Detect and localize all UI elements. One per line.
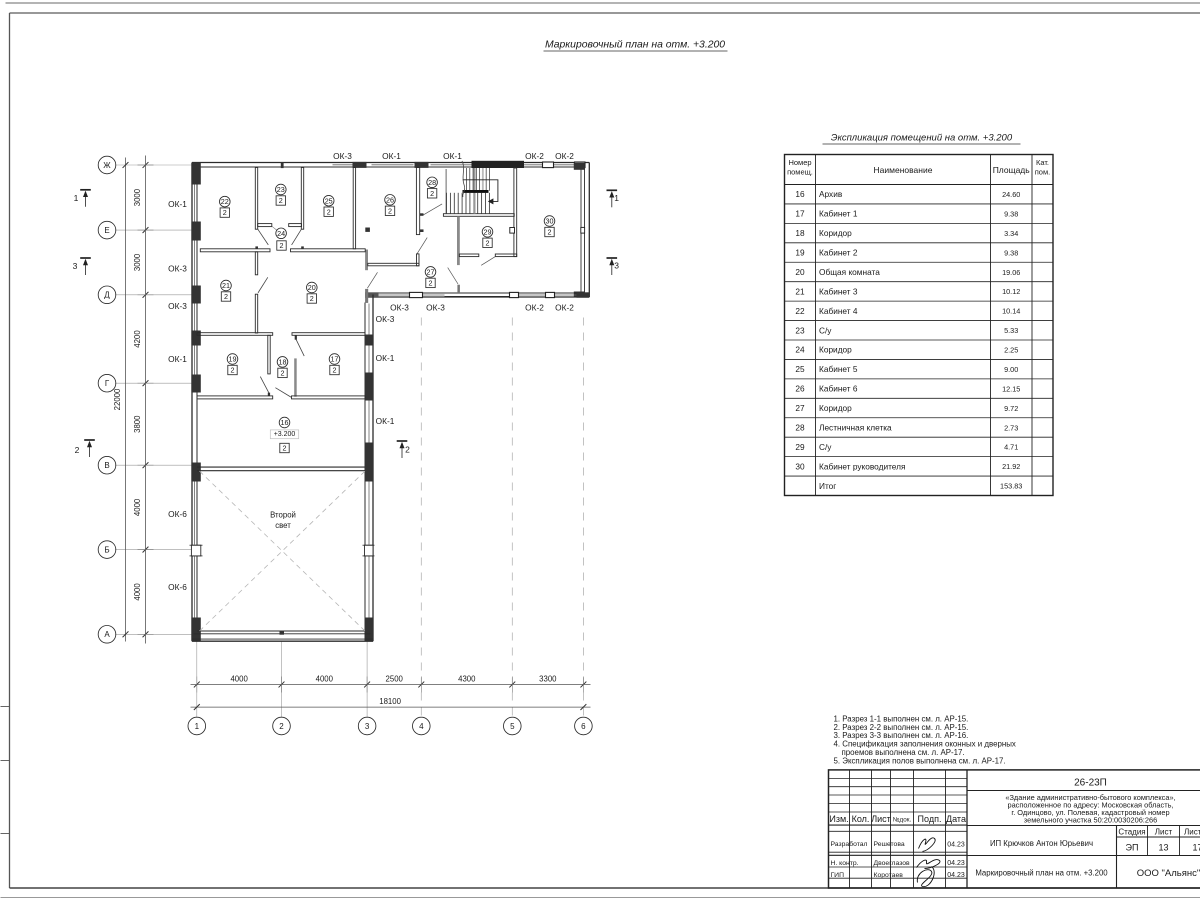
svg-text:4.71: 4.71 — [1004, 443, 1018, 452]
svg-text:3000: 3000 — [133, 253, 142, 271]
svg-text:2: 2 — [231, 366, 235, 375]
svg-text:Кабинет 6: Кабинет 6 — [819, 384, 858, 394]
svg-text:ОК-3: ОК-3 — [376, 314, 395, 324]
svg-text:Архив: Архив — [819, 189, 843, 199]
svg-text:ОК-3: ОК-3 — [426, 303, 445, 313]
svg-text:26: 26 — [386, 195, 394, 204]
svg-text:16: 16 — [795, 189, 805, 199]
svg-text:18: 18 — [795, 228, 805, 238]
svg-text:1: 1 — [74, 193, 79, 203]
svg-text:24: 24 — [795, 345, 805, 355]
svg-text:29: 29 — [795, 442, 805, 452]
svg-text:29: 29 — [484, 227, 492, 236]
svg-text:5.33: 5.33 — [1004, 326, 1018, 335]
svg-text:Кабинет 2: Кабинет 2 — [819, 248, 858, 258]
svg-text:22000: 22000 — [113, 388, 122, 410]
svg-text:пом.: пом. — [1035, 168, 1050, 177]
svg-text:24: 24 — [277, 229, 285, 238]
svg-text:9.00: 9.00 — [1004, 365, 1018, 374]
svg-text:С/у: С/у — [819, 442, 832, 452]
svg-text:ОК-2: ОК-2 — [525, 151, 544, 161]
svg-text:ОК-1: ОК-1 — [382, 151, 401, 161]
svg-text:Кабинет руководителя: Кабинет руководителя — [819, 461, 905, 471]
svg-text:18100: 18100 — [379, 697, 401, 706]
svg-text:С/у: С/у — [819, 325, 832, 335]
svg-text:Экспликация помещений на отм.: Экспликация помещений на отм. +3.200 — [831, 133, 1013, 144]
svg-text:22: 22 — [221, 197, 229, 206]
svg-text:18: 18 — [279, 358, 287, 367]
svg-text:ОК-1: ОК-1 — [443, 151, 462, 161]
svg-text:153.83: 153.83 — [1000, 482, 1022, 491]
svg-text:земельного участка 50:20:00302: земельного участка 50:20:0030206:266 — [1024, 816, 1157, 825]
svg-text:28: 28 — [795, 422, 805, 432]
svg-text:Площадь: Площадь — [993, 165, 1031, 175]
svg-text:Лестничная клетка: Лестничная клетка — [819, 422, 892, 432]
svg-text:4000: 4000 — [316, 675, 334, 684]
svg-text:Кабинет 4: Кабинет 4 — [819, 306, 858, 316]
svg-text:№док.: №док. — [893, 817, 912, 824]
svg-text:5: 5 — [510, 722, 515, 731]
svg-text:20: 20 — [308, 283, 316, 292]
svg-text:04.23: 04.23 — [947, 842, 965, 849]
svg-text:24.60: 24.60 — [1002, 190, 1020, 199]
svg-text:25: 25 — [325, 196, 333, 205]
svg-text:Коридор: Коридор — [819, 345, 852, 355]
svg-text:20: 20 — [795, 267, 805, 277]
svg-text:23: 23 — [277, 185, 285, 194]
svg-text:ОК-2: ОК-2 — [555, 303, 574, 313]
svg-text:А: А — [104, 630, 110, 639]
svg-text:Коридор: Коридор — [819, 228, 852, 238]
svg-text:ООО "Альянс": ООО "Альянс" — [1137, 868, 1200, 879]
svg-text:2: 2 — [75, 445, 80, 455]
svg-text:17: 17 — [795, 209, 805, 219]
svg-text:Номер: Номер — [788, 158, 811, 167]
svg-text:12.15: 12.15 — [1002, 384, 1020, 393]
svg-text:21: 21 — [222, 281, 230, 290]
svg-text:22: 22 — [795, 306, 805, 316]
svg-text:19: 19 — [229, 355, 237, 364]
svg-text:2500: 2500 — [386, 675, 404, 684]
svg-text:Г: Г — [105, 379, 110, 388]
svg-text:свет: свет — [275, 521, 291, 530]
svg-text:9.72: 9.72 — [1004, 404, 1018, 413]
svg-text:2: 2 — [283, 444, 287, 453]
svg-text:ОК-3: ОК-3 — [333, 151, 352, 161]
svg-text:2: 2 — [486, 238, 490, 247]
svg-text:21: 21 — [795, 286, 805, 296]
svg-text:3: 3 — [73, 261, 78, 271]
svg-text:04.23: 04.23 — [947, 872, 965, 879]
svg-text:Коридор: Коридор — [819, 403, 852, 413]
svg-text:4200: 4200 — [133, 330, 142, 348]
svg-text:В: В — [104, 461, 109, 470]
svg-text:4000: 4000 — [133, 498, 142, 516]
svg-text:Коротаев: Коротаев — [874, 872, 904, 879]
svg-text:27: 27 — [427, 268, 435, 277]
svg-text:2: 2 — [281, 369, 285, 378]
svg-text:21.92: 21.92 — [1002, 462, 1020, 471]
svg-text:9.38: 9.38 — [1004, 209, 1018, 218]
svg-text:2: 2 — [548, 228, 552, 237]
svg-text:17: 17 — [331, 355, 339, 364]
svg-text:ОК-3: ОК-3 — [168, 264, 187, 274]
svg-text:26-23П: 26-23П — [1074, 778, 1107, 789]
svg-text:2: 2 — [388, 206, 392, 215]
svg-text:Лист: Лист — [871, 814, 891, 824]
svg-text:Лист: Лист — [1155, 828, 1173, 837]
svg-text:Стадия: Стадия — [1118, 828, 1145, 837]
svg-text:Н. контр.: Н. контр. — [831, 860, 859, 867]
svg-text:Кат.: Кат. — [1036, 158, 1049, 167]
svg-text:10.12: 10.12 — [1002, 287, 1020, 296]
svg-text:ОК-1: ОК-1 — [168, 354, 187, 364]
svg-text:3: 3 — [614, 261, 619, 271]
svg-text:2: 2 — [429, 279, 433, 288]
svg-text:3.34: 3.34 — [1004, 229, 1018, 238]
svg-text:ИП Крючков Антон Юрьевич: ИП Крючков Антон Юрьевич — [990, 839, 1093, 848]
svg-text:2: 2 — [223, 208, 227, 217]
svg-text:ОК-1: ОК-1 — [376, 353, 395, 363]
svg-text:2: 2 — [280, 241, 284, 250]
svg-text:2: 2 — [310, 294, 314, 303]
svg-text:2: 2 — [333, 366, 337, 375]
svg-text:+3.200: +3.200 — [274, 431, 296, 438]
svg-text:ОК-2: ОК-2 — [525, 303, 544, 313]
svg-text:2.73: 2.73 — [1004, 423, 1018, 432]
svg-text:25: 25 — [795, 364, 805, 374]
svg-text:4000: 4000 — [230, 675, 248, 684]
svg-text:2: 2 — [279, 722, 284, 731]
svg-text:Кабинет 3: Кабинет 3 — [819, 286, 858, 296]
svg-text:ОК-6: ОК-6 — [168, 582, 187, 592]
svg-text:2: 2 — [430, 189, 434, 198]
svg-text:19.06: 19.06 — [1002, 268, 1020, 277]
svg-text:5. Экспликация полов выполнена: 5. Экспликация полов выполнена см. л. АР… — [834, 756, 1006, 765]
svg-text:2: 2 — [327, 207, 331, 216]
svg-text:ОК-1: ОК-1 — [376, 416, 395, 426]
svg-text:ОК-1: ОК-1 — [168, 199, 187, 209]
svg-text:27: 27 — [795, 403, 805, 413]
svg-text:28: 28 — [428, 178, 436, 187]
svg-text:10.14: 10.14 — [1002, 307, 1020, 316]
svg-text:Листов: Листов — [1184, 828, 1200, 837]
svg-text:Итог: Итог — [819, 481, 836, 491]
svg-text:26: 26 — [795, 384, 805, 394]
svg-text:Второй: Второй — [270, 511, 296, 520]
svg-text:Общая комната: Общая комната — [819, 267, 880, 277]
svg-text:16: 16 — [281, 418, 289, 427]
svg-text:2.25: 2.25 — [1004, 346, 1018, 355]
svg-text:04.23: 04.23 — [947, 860, 965, 867]
svg-text:4000: 4000 — [133, 583, 142, 601]
svg-text:30: 30 — [546, 217, 554, 226]
svg-text:ОК-3: ОК-3 — [390, 303, 409, 313]
svg-text:6: 6 — [581, 722, 586, 731]
svg-text:Решетова: Решетова — [874, 841, 905, 848]
svg-text:Е: Е — [104, 226, 109, 235]
svg-text:2: 2 — [224, 292, 228, 301]
svg-text:Подп.: Подп. — [918, 814, 942, 824]
svg-text:1: 1 — [195, 722, 200, 731]
svg-text:ЭП: ЭП — [1126, 842, 1139, 852]
svg-text:3000: 3000 — [133, 188, 142, 206]
svg-text:ОК-6: ОК-6 — [168, 509, 187, 519]
svg-text:1: 1 — [614, 193, 619, 203]
svg-text:Маркировочный план на отм. +3.: Маркировочный план на отм. +3.200 — [545, 40, 725, 51]
svg-text:ГИП: ГИП — [831, 872, 845, 879]
svg-text:3300: 3300 — [539, 675, 557, 684]
svg-text:9.38: 9.38 — [1004, 248, 1018, 257]
svg-text:3: 3 — [365, 722, 370, 731]
svg-text:Наименование: Наименование — [874, 165, 933, 175]
svg-text:Дата: Дата — [946, 814, 966, 824]
svg-text:19: 19 — [795, 248, 805, 258]
svg-text:17: 17 — [1192, 842, 1200, 852]
svg-text:Д: Д — [104, 291, 110, 300]
svg-text:4: 4 — [419, 722, 424, 731]
svg-text:2: 2 — [279, 196, 283, 205]
svg-text:Разработал: Разработал — [831, 840, 868, 848]
svg-text:30: 30 — [795, 461, 805, 471]
svg-text:помещ.: помещ. — [787, 168, 813, 177]
svg-text:ОК-2: ОК-2 — [555, 151, 574, 161]
svg-text:Маркировочный план на отм. +3.: Маркировочный план на отм. +3.200 — [975, 868, 1108, 877]
svg-text:13: 13 — [1158, 842, 1168, 852]
svg-text:ОК-3: ОК-3 — [168, 301, 187, 311]
svg-text:Б: Б — [104, 546, 109, 555]
svg-text:23: 23 — [795, 325, 805, 335]
svg-text:4300: 4300 — [458, 675, 476, 684]
svg-text:Ж: Ж — [103, 161, 111, 170]
svg-text:Двоеглазов: Двоеглазов — [874, 860, 911, 867]
svg-text:3800: 3800 — [133, 415, 142, 433]
svg-text:Изм.: Изм. — [829, 814, 848, 824]
svg-text:Кол.: Кол. — [852, 814, 870, 824]
svg-text:2: 2 — [405, 445, 410, 455]
svg-text:Кабинет 1: Кабинет 1 — [819, 209, 858, 219]
svg-text:Кабинет 5: Кабинет 5 — [819, 364, 858, 374]
